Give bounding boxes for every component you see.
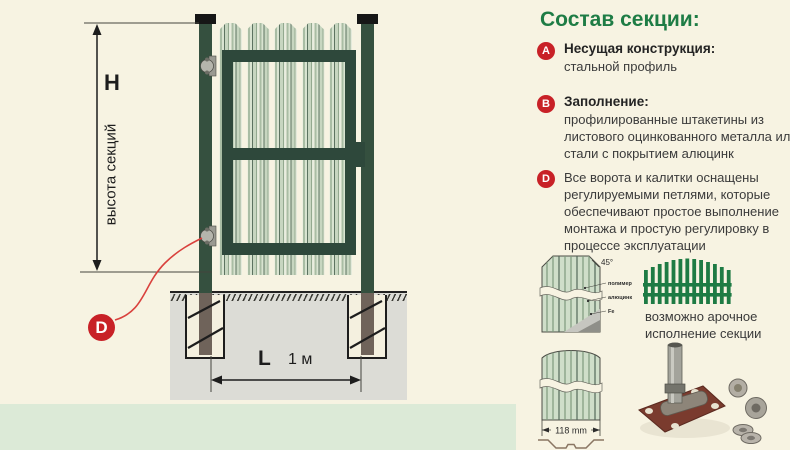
item-d-text: Все ворота и калитки оснащены регулируем… [564,169,790,254]
arched-fence-rail [643,283,732,287]
width-dim-label: 118 mm [555,426,587,436]
height-caption: высота секций [103,109,120,241]
width-value: 1 м [288,351,312,369]
picket-profile-chamfered: 45° полимер алюцинк Fe [540,252,633,332]
hinge-pin [665,343,685,404]
concrete-marks [188,301,385,348]
arched-fence-rail [643,293,732,297]
arched-fence-pickets [643,259,732,305]
diagram-annotations [0,0,530,400]
arched-fence-drawing [643,256,733,304]
d-marker-leader-line [115,238,202,320]
hinge-bottom-icon [201,226,217,246]
picket-profile-arched: 118 mm [538,348,604,448]
item-badge-b: B [537,95,555,113]
height-dimension-arrow [93,24,102,271]
adjustable-hinge-photo [635,340,790,448]
item-b-heading: Заполнение: [564,94,649,109]
layer-label-aluzinc: алюцинк [608,295,632,301]
arched-caption-line1: возможно арочное [645,308,757,325]
width-dimension-arrow [211,356,361,392]
item-badge-d: D [537,170,555,188]
width-dimension-118: 118 mm [542,420,600,436]
infographic-canvas: H высота секций D L 1 м Состав секции: A… [0,0,790,450]
layer-label-fe: Fe [608,309,614,315]
layer-label-polymer: полимер [608,281,633,287]
angle-label: 45° [601,258,613,267]
hinge-top-icon [201,56,217,76]
item-badge-a: A [537,42,555,60]
item-a-text: стальной профиль [564,58,790,75]
picket-cross-section [538,440,604,448]
hinge-nuts-washers [729,379,767,444]
item-b-text: профилированные штакетины из листового о… [564,111,790,162]
height-letter: H [104,70,120,96]
section-title: Состав секции: [540,8,700,32]
footer-standards-bar: L Стандартные проем ворот / калитки: 3,0… [0,404,516,450]
width-letter: L [258,347,271,371]
d-marker-badge: D [88,314,115,341]
item-a-heading: Несущая конструкция: [564,41,715,56]
